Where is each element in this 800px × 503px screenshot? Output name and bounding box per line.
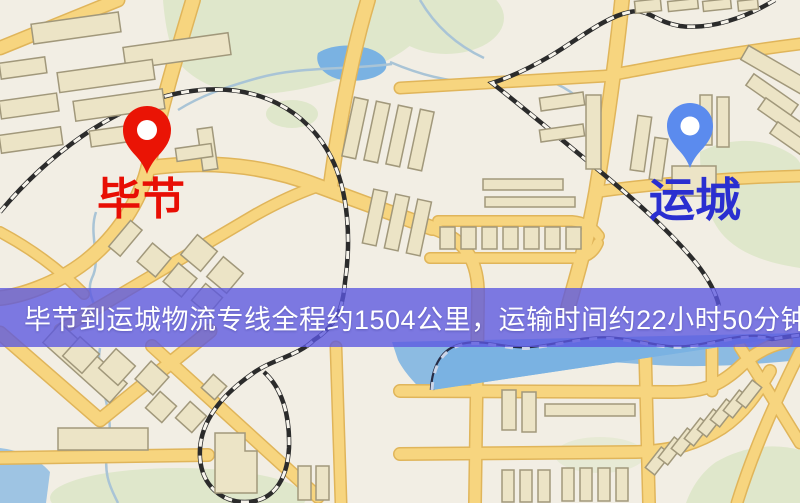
- destination-city-label: 运城: [649, 174, 741, 226]
- buildings-layer: [0, 0, 800, 502]
- map-canvas: 毕节 运城: [0, 0, 800, 503]
- origin-city-label: 毕节: [97, 175, 185, 224]
- map-viewport[interactable]: 毕节 运城 毕节到运城物流专线全程约1504公里，运输时间约22小时50分钟.: [0, 0, 800, 503]
- route-info-text: 毕节到运城物流专线全程约1504公里，运输时间约22小时50分钟.: [24, 298, 800, 337]
- route-info-banner: 毕节到运城物流专线全程约1504公里，运输时间约22小时50分钟.: [0, 288, 800, 347]
